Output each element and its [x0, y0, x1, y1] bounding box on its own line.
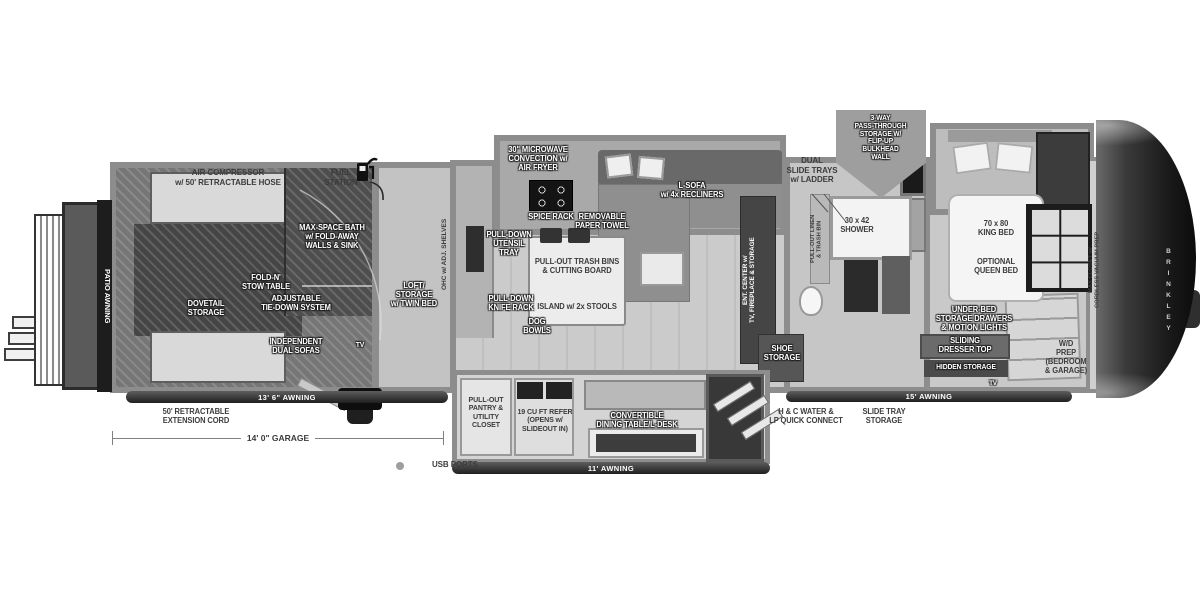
brand-logo: BRINKLEY	[1158, 228, 1172, 356]
extension-cord-label: 50' RETRACTABLE EXTENSION CORD	[163, 408, 230, 426]
garage-tv-label: TV	[356, 342, 364, 350]
max-closet-label: MAX CLOSET w/ CORDLESS VACUUM PREP	[1088, 205, 1112, 335]
ent-center-label: ENT. CENTER w/ TV, FIREPLACE & STORAGE	[742, 202, 774, 358]
hc-water-label: H & C WATER & LP QUICK CONNECT	[769, 408, 843, 426]
loft-area	[379, 168, 450, 387]
patio-awning-label: PATIO AWNING	[99, 226, 111, 366]
garage-awning-label: 13' 6" AWNING	[258, 393, 316, 402]
queen-bed-label: OPTIONAL QUEEN BED	[974, 258, 1018, 276]
island-stool	[540, 228, 562, 243]
rv-floorplan-diagram: PATIO AWNING BRINKLEY MAX-SPACE BATH w/ …	[0, 0, 1200, 600]
knife-rack-label: PULL-DOWN KNIFE RACK	[488, 295, 533, 313]
trash-bins-label: PULL-OUT TRASH BINS & CUTTING BOARD	[535, 258, 619, 276]
air-compressor-label: AIR COMPRESSOR w/ 50' RETRACTABLE HOSE	[175, 168, 281, 187]
bath-door-panel	[882, 256, 910, 314]
patio-deck	[62, 202, 100, 390]
griddle-base	[347, 410, 373, 424]
slide-tray-storage-label: SLIDE TRAY STORAGE	[862, 408, 905, 426]
main-awning-bar: 11' AWNING	[452, 462, 770, 474]
microwave-label: 30" MICROWAVE CONVECTION w/ AIR FRYER	[508, 146, 567, 173]
sliding-dresser-label: SLIDING DRESSER TOP	[939, 337, 992, 355]
bed-pillow	[952, 142, 992, 175]
garage-sofa-bottom	[150, 331, 286, 383]
dimension-line	[113, 438, 241, 439]
fuel-pump-icon	[356, 157, 378, 183]
garage-dimension: 14' 0" GARAGE	[112, 430, 444, 446]
utensil-tray-label: PULL-DOWN UTENSIL TRAY	[486, 231, 531, 258]
refer-label: 19 CU FT REFER (OPENS w/ SLIDEOUT IN)	[517, 408, 572, 433]
pantry-label: PULL-OUT PANTRY & UTILITY CLOSET	[469, 396, 504, 430]
l-sofa-label: L-SOFA w/ 4x RECLINERS	[661, 182, 724, 200]
spice-rack-label: SPICE RACK	[528, 213, 573, 222]
under-bed-label: UNDER-BED STORAGE DRAWERS & MOTION LIGHT…	[936, 306, 1012, 333]
tie-down-label: ADJUSTABLE TIE-DOWN SYSTEM	[261, 295, 331, 313]
shower-label: 30 x 42 SHOWER	[840, 217, 873, 235]
garage-awning-bar: 13' 6" AWNING	[126, 391, 448, 403]
bath-door-panel	[844, 260, 878, 312]
hidden-storage-label: HIDDEN STORAGE	[936, 363, 996, 371]
garage-dimension-label: 14' 0" GARAGE	[241, 433, 315, 443]
dining-table-top	[596, 434, 696, 452]
refer-lid	[517, 382, 543, 399]
dimension-tick	[443, 431, 444, 445]
dual-sofas-label: INDEPENDENT DUAL SOFAS	[270, 338, 323, 356]
main-awning-label: 11' AWNING	[588, 464, 634, 473]
fold-n-stow-label: FOLD-N' STOW TABLE	[242, 274, 290, 292]
ottoman	[640, 252, 684, 286]
linen-label: PULL-OUT LINEN & TRASH BIN	[810, 196, 830, 282]
usb-ports-dot	[396, 462, 404, 470]
max-space-bath-label: MAX-SPACE BATH w/ FOLD-AWAY WALLS & SINK	[299, 224, 365, 251]
dining-label: CONVERTIBLE DINING TABLE/L-DESK	[596, 412, 677, 430]
dovetail-storage-label: DOVETAIL STORAGE	[188, 300, 225, 318]
garage-loft-wall	[372, 168, 379, 387]
dimension-line	[315, 438, 443, 439]
utensil-tray-cabinet	[466, 226, 484, 272]
sofa-pillow	[605, 153, 633, 178]
king-bed-label: 70 x 80 KING BED	[978, 220, 1014, 238]
bedroom-tv-label: TV	[989, 380, 997, 387]
sofa-pillow	[637, 156, 665, 180]
bedroom-awning-bar: 15' AWNING	[786, 391, 1072, 402]
paper-towel-label: REMOVABLE PAPER TOWEL	[575, 213, 628, 231]
dog-bowls-label: DOG BOWLS	[523, 318, 551, 336]
ohc-shelves-label: OHC w/ ADJ. SHELVES	[441, 202, 455, 306]
bed-pillow	[995, 142, 1034, 174]
bedroom-window	[1026, 204, 1092, 292]
stove	[529, 180, 573, 211]
wd-prep-label: W/D PREP (BEDROOM & GARAGE)	[1045, 340, 1087, 376]
island-label: ISLAND w/ 2x STOOLS	[537, 303, 617, 312]
toilet	[799, 286, 823, 316]
dual-slide-trays-label: DUAL SLIDE TRAYS w/ LADDER	[786, 156, 837, 185]
wardrobe	[1036, 132, 1090, 208]
patio-railing	[34, 214, 64, 386]
window-panes	[1030, 208, 1088, 288]
refer-lid	[546, 382, 572, 399]
usb-ports-label: USB PORTS	[432, 461, 478, 470]
pass-through-label: 3-WAY PASS-THROUGH STORAGE W/ FLIP-UP BU…	[855, 115, 907, 162]
fuel-station-label: FUEL STATION	[324, 168, 357, 187]
shoe-storage-label: SHOE STORAGE	[764, 345, 800, 363]
bedroom-awning-label: 15' AWNING	[906, 392, 953, 401]
dining-bench	[584, 380, 706, 410]
loft-storage-label: LOFT/ STORAGE w/ TWIN BED	[391, 282, 437, 309]
kitchen-island	[528, 236, 626, 326]
